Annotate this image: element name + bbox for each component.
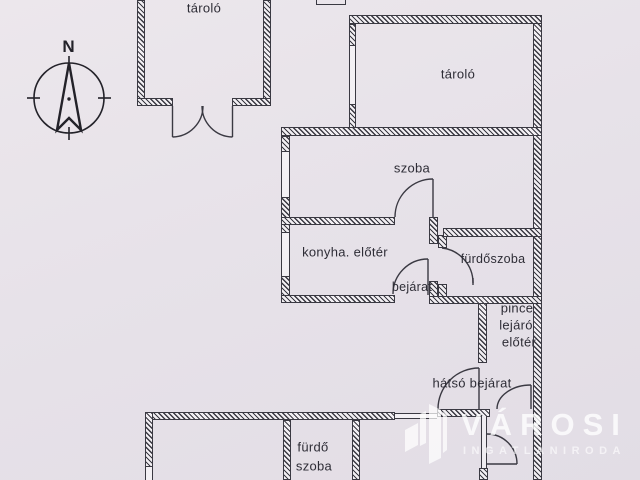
floor-plan: tároló tároló szoba konyha. előtér fürdő… (0, 0, 640, 480)
label-storage-upper: tároló (187, 1, 221, 16)
label-bath-line1: fürdő (297, 440, 328, 455)
door-porch (487, 434, 517, 464)
label-kitchen-foyer: konyha. előtér (302, 245, 388, 260)
label-bath-line2: szoba (296, 459, 332, 474)
label-cellar-line2: lejáró (499, 318, 533, 333)
label-room: szoba (394, 161, 430, 176)
label-cellar-line1: pince (501, 301, 534, 316)
label-storage-right: tároló (441, 67, 475, 82)
compass-needle (57, 63, 81, 130)
label-cellar-line3: előtér (502, 335, 536, 350)
double-door-upper-storage (173, 106, 233, 137)
label-back-entrance: hátsó bejárat (432, 376, 511, 391)
label-entrance: bejárat (392, 280, 432, 294)
compass-north-label: N (62, 37, 75, 57)
door-room (395, 179, 433, 217)
compass-rose (27, 56, 111, 140)
door-and-compass-layer (0, 0, 640, 480)
label-bathroom: fürdőszoba (461, 252, 526, 266)
